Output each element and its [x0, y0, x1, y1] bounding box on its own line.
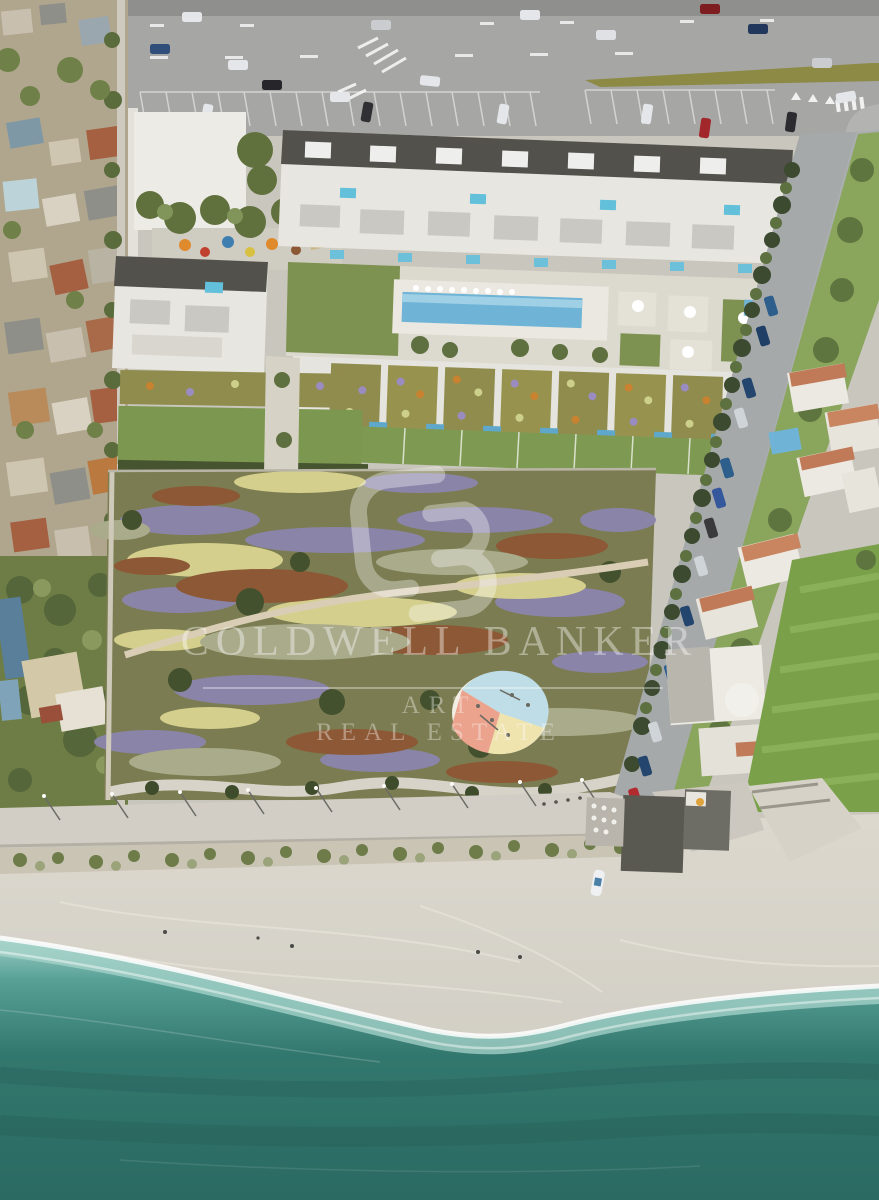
- yellow-canopy: [696, 798, 704, 806]
- townhouse-row: [118, 356, 788, 478]
- aerial-render-screenshot: COLDWELL BANKER ART REAL ESTATE: [0, 0, 879, 1200]
- aerial-scene: [0, 0, 879, 1200]
- amenity-pool-deck: [286, 262, 788, 374]
- flower-park: [90, 469, 656, 800]
